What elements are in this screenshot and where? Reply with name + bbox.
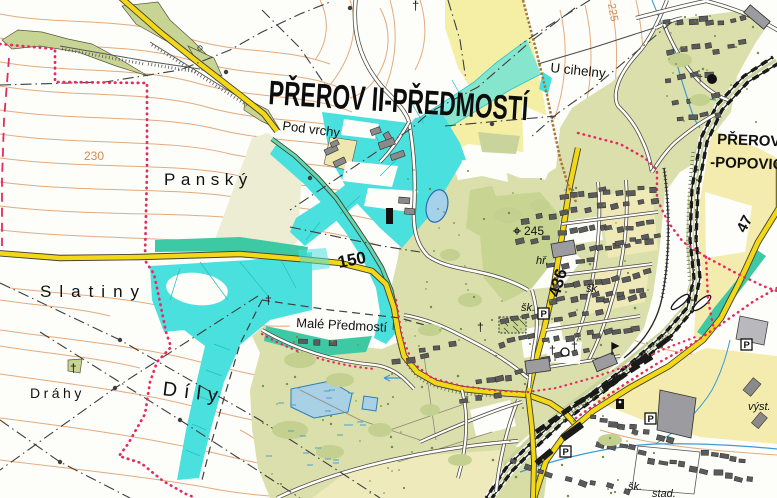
svg-text:†: † <box>549 343 556 357</box>
svg-text:P: P <box>648 414 655 425</box>
svg-text:Slatiny: Slatiny <box>40 282 147 301</box>
svg-text:Panský: Panský <box>164 170 253 189</box>
svg-text:245: 245 <box>524 224 544 238</box>
svg-text:Dráhy: Dráhy <box>30 385 85 401</box>
svg-text:-POPOVIC: -POPOVIC <box>710 154 777 174</box>
svg-text:†: † <box>571 339 578 353</box>
svg-text:stad.: stad. <box>652 488 676 498</box>
svg-text:†: † <box>265 293 272 307</box>
svg-text:PŘEROV: PŘEROV <box>717 130 777 150</box>
svg-text:výst.: výst. <box>748 401 771 413</box>
svg-text:230: 230 <box>84 149 104 163</box>
svg-text:P: P <box>563 447 570 458</box>
svg-text:†: † <box>697 73 703 85</box>
svg-text:šk.: šk. <box>628 481 642 493</box>
svg-text:P: P <box>744 340 751 351</box>
svg-text:P: P <box>541 309 548 320</box>
svg-text:šk.: šk. <box>521 302 535 314</box>
svg-text:†: † <box>477 320 484 334</box>
svg-text:hř.: hř. <box>536 255 549 267</box>
svg-text:šk.: šk. <box>586 283 600 295</box>
svg-text:†: † <box>412 0 419 13</box>
svg-text:†: † <box>70 361 77 375</box>
